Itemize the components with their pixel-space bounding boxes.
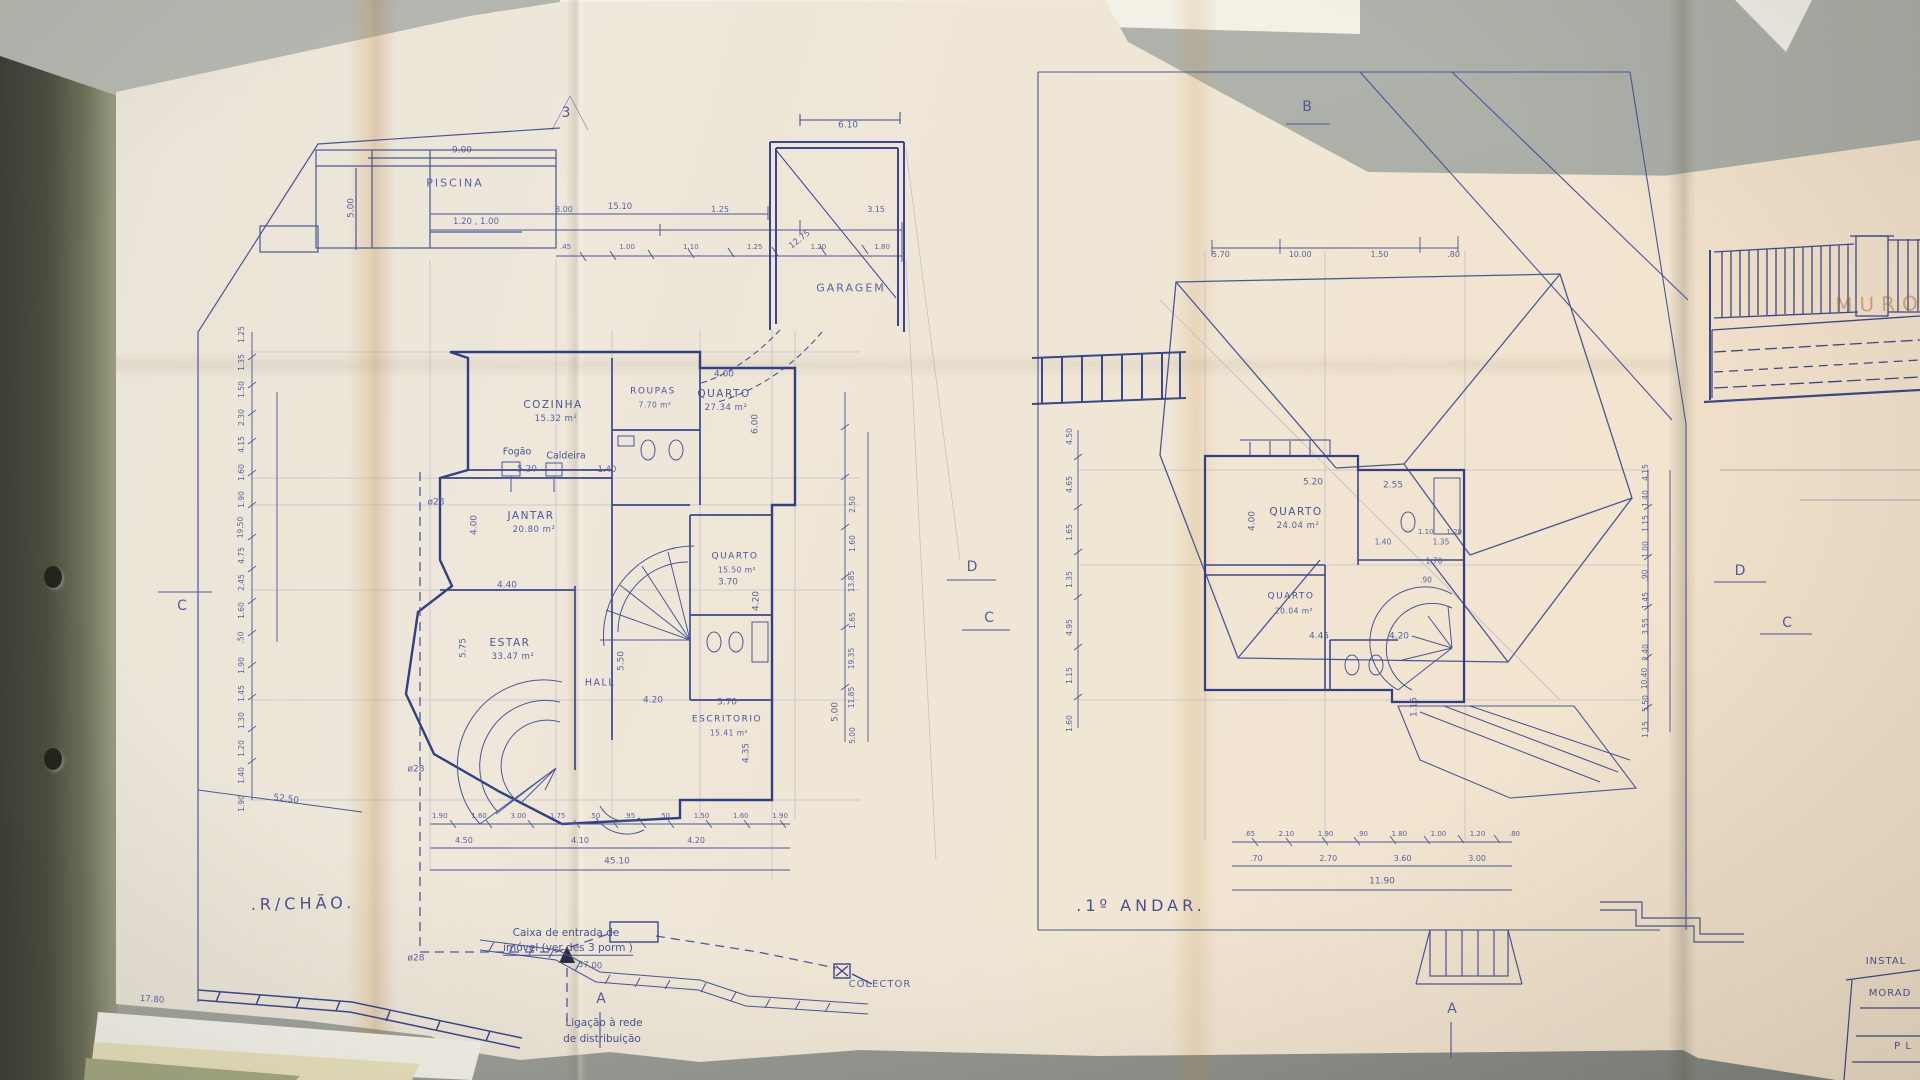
dim-value: 1.65 <box>1064 524 1073 541</box>
dim-value: 5.70 <box>1212 250 1230 259</box>
right-bottom-row2: .702.703.603.00 <box>1250 854 1486 863</box>
dim-r-b2: 4.20 <box>1389 633 1409 642</box>
dim-value: 1.90 <box>1318 830 1334 838</box>
dim-jantar-w: 5.20 <box>517 466 537 475</box>
dim-value: .95 <box>624 812 635 820</box>
section-marker-c: C <box>984 611 994 625</box>
room-cozinha: COZINHA <box>523 400 582 411</box>
dim-quarto2-h: 4.20 <box>753 591 762 611</box>
dim-value: .50 <box>589 812 600 820</box>
dim-value: .50 <box>237 632 246 644</box>
chain-row1: 8.001.253.15 <box>555 205 885 214</box>
dim-value: 1.35 <box>236 354 245 371</box>
dim-value: 3.55 <box>1640 618 1649 635</box>
dim-value: 2.30 <box>236 409 245 426</box>
dim-r-s2: 1.35 <box>1433 538 1450 546</box>
dim-r-v1: 1.15 <box>1411 697 1420 717</box>
pool-label: PISCINA <box>426 178 484 189</box>
dim-value: 19.50 <box>236 517 245 538</box>
dim-value: 3.00 <box>511 812 527 820</box>
dim-value: 1.20 <box>236 740 245 757</box>
room-estar-area: 33.47 m² <box>492 653 535 662</box>
stair-dim2: 1.70 <box>1426 557 1443 565</box>
garage-plan <box>698 112 904 402</box>
dim-quarto2-w: 3.70 <box>718 579 738 588</box>
dim-value: 1.90 <box>236 657 245 674</box>
right-plan-title: .1º ANDAR. <box>1076 898 1205 914</box>
section-marker-a: A <box>596 992 606 1006</box>
dim-quarto1-w: 4.00 <box>714 371 734 380</box>
room-quarto-r2: QUARTO <box>1267 593 1314 602</box>
dim-value: 1.40 <box>1640 490 1649 507</box>
dim-value: 1.90 <box>236 795 245 812</box>
entry-dim: 57.00 <box>578 961 603 971</box>
dim-value: 5.50 <box>1640 695 1649 712</box>
pergola <box>1032 352 1186 404</box>
dim-value: 4.20 <box>687 836 705 845</box>
service-note-line1: Ligação à rede <box>565 1018 642 1029</box>
room-roupas: ROUPAS <box>630 388 676 397</box>
dim-value: .70 <box>1250 854 1263 863</box>
title-block-line3: P L <box>1894 1042 1912 1052</box>
dim-value: 8.00 <box>555 205 573 214</box>
garage-label: GARAGEM <box>816 283 886 294</box>
dim-estar-h: 5.75 <box>460 638 469 658</box>
staircase-right <box>1345 478 1460 690</box>
dim-value: 1.15 <box>1064 667 1073 684</box>
room-quarto-r2-area: 20.04 m² <box>1275 607 1313 615</box>
room-quarto-r1: QUARTO <box>1269 507 1322 518</box>
dim-escr-h: 4.35 <box>743 743 752 763</box>
room-quarto-r1-area: 24.04 m² <box>1277 522 1320 531</box>
bottom-dims-row2: 4.504.104.20 <box>455 836 705 845</box>
dim-value: 1.10 <box>1418 528 1434 536</box>
pipe-label: ø28 <box>408 955 425 964</box>
dim-value: 1.25 <box>747 243 763 251</box>
dim-value: .90 <box>1641 569 1650 581</box>
bottom-dims-row1: 1.901.603.001.75.50.95.501.501.601.90 <box>432 812 788 820</box>
dim-value: .80 <box>1509 830 1520 838</box>
section-marker-c: C <box>1782 616 1792 630</box>
dim-value: 1.20 <box>1446 528 1462 536</box>
room-quarto2: QUARTO <box>711 553 758 562</box>
left-plan-title: .R/CHÃO. <box>251 895 356 913</box>
dim-value: 19.35 <box>847 648 856 669</box>
dim-value: 4.10 <box>571 836 589 845</box>
muro-label: MURO <box>1835 293 1920 315</box>
right-plan-left-column: 4.504.651.651.354.951.151.60 <box>1056 432 1082 728</box>
pipe-label: ø28 <box>428 499 445 508</box>
dim-value: 1.20 <box>1470 830 1486 838</box>
dim-value: 1.60 <box>236 602 245 619</box>
section-marker-d: D <box>967 560 978 574</box>
chain-row2: .451.001.101.251.201.80 <box>560 243 890 251</box>
dim-value: 1.00 <box>1640 541 1649 558</box>
garage-dim-top: 6.10 <box>838 122 858 131</box>
pool-dim-top: 9.00 <box>452 147 472 156</box>
dim-value: 5.00 <box>847 727 856 744</box>
dim-escr-w: 3.70 <box>717 699 737 708</box>
dim-value: 4.15 <box>1640 464 1649 481</box>
dim-value: 1.35 <box>1064 572 1073 589</box>
entry-note-line2: imóvel (ver des 3 porm ) <box>503 943 633 956</box>
dim-value: 1.00 <box>619 243 635 251</box>
dim-value: 1.60 <box>847 535 856 552</box>
dim-r-b1: 4.45 <box>1309 633 1329 642</box>
dim-value: 1.25 <box>711 205 729 214</box>
pipe-label: ø28 <box>408 766 425 775</box>
room-jantar: JANTAR <box>507 511 554 522</box>
section-marker-d: D <box>1735 564 1746 578</box>
boiler-label: Caldeira <box>546 451 585 461</box>
dim-value: .90 <box>1357 830 1368 838</box>
dim-value: 4.50 <box>455 836 473 845</box>
wall-total: 17.80 <box>140 995 165 1005</box>
right-dim-column-left-plan: 2.501.6013.851.6519.3511.855.00 <box>838 500 866 740</box>
dim-jantar-b: 4.40 <box>497 582 517 591</box>
dim-value: 1.80 <box>1392 830 1408 838</box>
dim-value: 2.40 <box>1640 644 1649 661</box>
title-block-line1: INSTAL <box>1866 957 1907 967</box>
service-note-line2: de distribuição <box>563 1034 641 1045</box>
collector-label: COLECTOR <box>849 980 912 990</box>
stair-detail <box>1416 930 1522 984</box>
dim-r-w2: 2.55 <box>1383 482 1403 491</box>
dim-value: 1.00 <box>1431 830 1447 838</box>
site-boundary-right <box>1038 72 1688 930</box>
dim-value: .50 <box>659 812 670 820</box>
pool-dim-side: 5.00 <box>348 198 357 218</box>
photo-architectural-blueprints: PISCINA 9.00 5.00 1.20 , 1.00 15.10 8.00… <box>0 0 1920 1080</box>
dim-value: 1.50 <box>1371 250 1389 259</box>
dim-value: .65 <box>1244 830 1255 838</box>
right-bottom-total: 11.90 <box>1369 878 1395 887</box>
pool-dims-inner: 1.20 , 1.00 <box>453 218 499 227</box>
dim-value: 1.60 <box>236 464 245 481</box>
room-quarto1: QUARTO <box>697 389 750 400</box>
room-hall: HALL <box>585 678 615 688</box>
dim-value: 10.40 <box>1640 667 1649 688</box>
title-block-line2: MORAD <box>1869 989 1912 999</box>
dim-hall-h: 5.50 <box>618 651 627 671</box>
room-jantar-area: 20.80 m² <box>513 526 556 535</box>
roof-outline <box>1160 274 1632 662</box>
right-plan-top-dims: 5.7010.001.50.80 <box>1212 250 1460 259</box>
bottom-total: 45.10 <box>604 858 630 867</box>
room-quarto2-area: 15.50 m² <box>718 566 756 574</box>
dim-value: 2.70 <box>1319 854 1337 863</box>
left-dim-column: 1.251.351.502.304.151.601.9019.504.752.4… <box>228 330 254 808</box>
dim-value: 1.90 <box>432 812 448 820</box>
dim-value: 4.15 <box>236 436 245 453</box>
title-block <box>1844 970 1920 1080</box>
entry-note-line1: Caixa de entrada de <box>513 928 620 939</box>
room-cozinha-area: 15.32 m² <box>535 415 578 424</box>
dim-value: 1.60 <box>1064 715 1073 732</box>
dim-value: 4.65 <box>1064 476 1073 493</box>
dim-value: 1.60 <box>471 812 487 820</box>
dim-value: 3.60 <box>1394 854 1412 863</box>
dim-value: 1.75 <box>550 812 566 820</box>
entrance-porch-fan <box>457 680 644 834</box>
dim-value: 1.50 <box>236 381 245 398</box>
section-marker-a: A <box>1447 1002 1457 1016</box>
dimension-lines-left <box>198 332 868 870</box>
room-escritorio: ESCRITORIO <box>692 716 762 725</box>
dim-value: 1.65 <box>847 612 856 629</box>
section-marker-lines <box>158 96 1812 1058</box>
dim-value: .45 <box>560 243 571 251</box>
dim-hall-w: 4.20 <box>643 697 663 706</box>
dim-value: 4.75 <box>236 547 245 564</box>
section-marker-b: B <box>1302 100 1312 114</box>
room-quarto1-area: 27.34 m² <box>705 404 748 413</box>
sheet-number: 3 <box>562 106 571 120</box>
stepped-wall <box>1600 902 1744 942</box>
room-escritorio-area: 15.41 m² <box>710 729 748 737</box>
dim-jantar-small: 1.40 <box>598 466 617 475</box>
dim-jantar-h: 4.00 <box>471 515 480 535</box>
dim-value: 10.00 <box>1289 250 1312 259</box>
dim-value: 1.80 <box>874 243 890 251</box>
dim-quarto1-h: 6.00 <box>752 414 761 434</box>
wall-elevation <box>1704 236 1920 500</box>
dim-value: 3.15 <box>867 205 885 214</box>
room-estar: ESTAR <box>490 638 531 649</box>
dim-value: 3.00 <box>1468 854 1486 863</box>
staircase-left <box>600 546 694 646</box>
dim-value: 1.50 <box>694 812 710 820</box>
dim-value: 1.90 <box>772 812 788 820</box>
dimension-chain <box>430 206 902 262</box>
dim-value: 11.85 <box>847 686 856 707</box>
dim-value: 1.45 <box>236 685 245 702</box>
dim-value: 13.85 <box>847 571 856 592</box>
room-roupas-area: 7.70 m² <box>639 401 672 409</box>
dim-value: 1.40 <box>236 767 245 784</box>
right-bottom-row1: .652.101.90.901.801.001.20.80 <box>1244 830 1520 838</box>
dim-value: 1.10 <box>683 243 699 251</box>
stair-dim3: .90 <box>1420 576 1432 584</box>
stove-label: Fogão <box>503 447 532 457</box>
dim-value: 1.60 <box>733 812 749 820</box>
right-plan-right-column: 4.151.401.151.00.901.453.552.4010.405.50… <box>1632 468 1658 734</box>
terrace <box>1398 706 1636 798</box>
dim-value: 2.50 <box>847 496 856 513</box>
dim-value: 1.45 <box>1640 593 1649 610</box>
dim-r-h1: 4.00 <box>1249 511 1258 531</box>
dim-value: .80 <box>1447 250 1460 259</box>
dim-value: 2.10 <box>1279 830 1295 838</box>
dim-r-w1: 5.20 <box>1303 479 1323 488</box>
stair-dims-row: 1.101.20 <box>1418 528 1462 536</box>
dim-value: 1.15 <box>1640 516 1649 533</box>
section-marker-c: C <box>177 599 187 613</box>
dim-value: 2.45 <box>236 574 245 591</box>
dim-value: 4.50 <box>1064 428 1073 445</box>
house-outline-left <box>406 352 795 824</box>
dim-value: 1.90 <box>236 492 245 509</box>
retaining-wall <box>198 990 522 1048</box>
dim-value: 1.25 <box>236 326 245 343</box>
dim-r-s1: 1.40 <box>1375 538 1392 546</box>
dim-value: 1.30 <box>236 712 245 729</box>
dim-value: 4.95 <box>1064 619 1073 636</box>
dim-value: 1.15 <box>1640 721 1649 738</box>
dim-value: 1.20 <box>811 243 827 251</box>
house-partitions-left <box>440 358 772 770</box>
